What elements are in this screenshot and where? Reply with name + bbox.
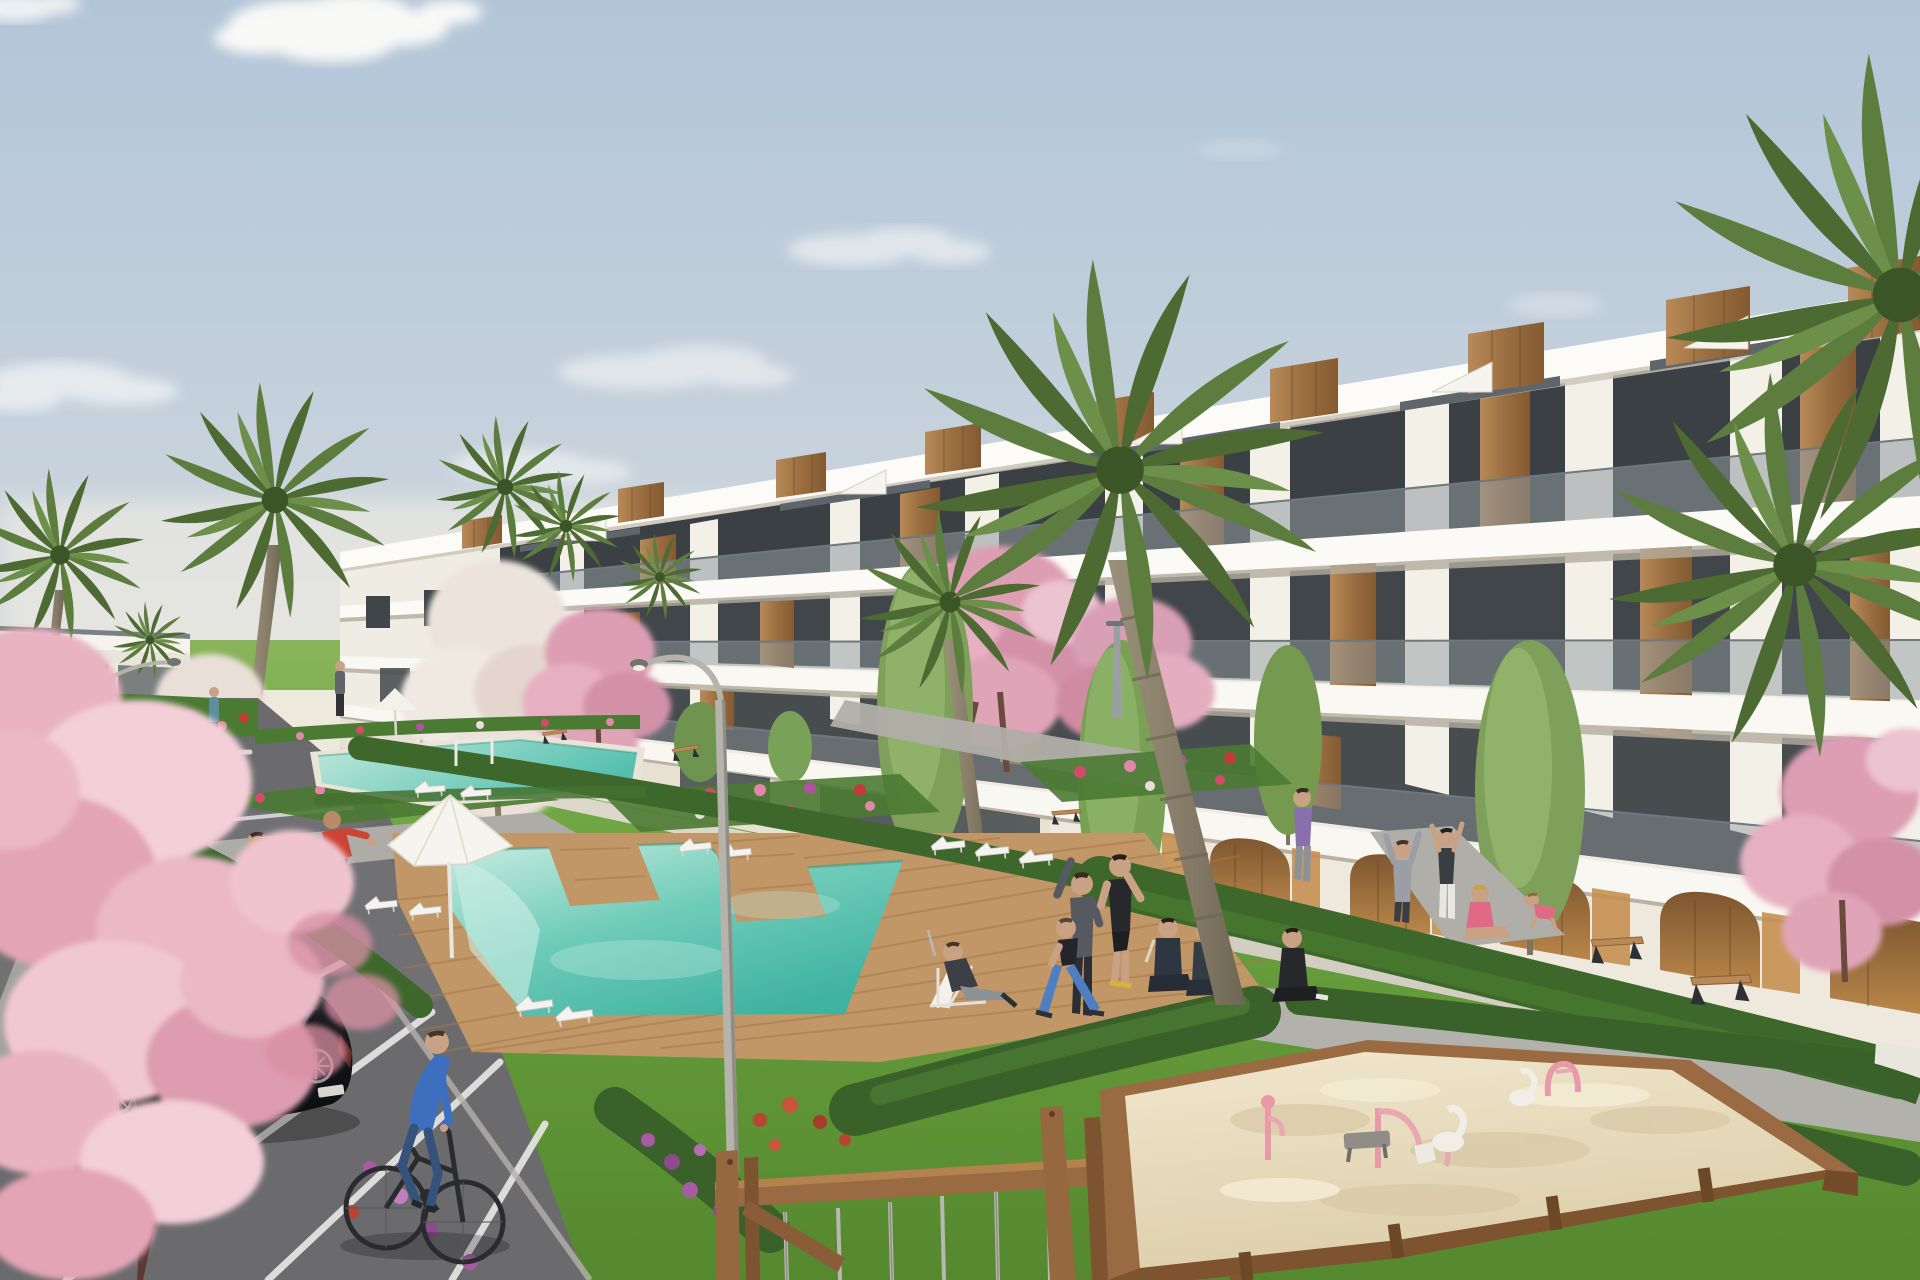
- scene-canvas: [0, 0, 1920, 1280]
- main-pool: [449, 843, 903, 1016]
- rendered-scene: New-build Mediterranean apartment comple…: [0, 0, 1920, 1280]
